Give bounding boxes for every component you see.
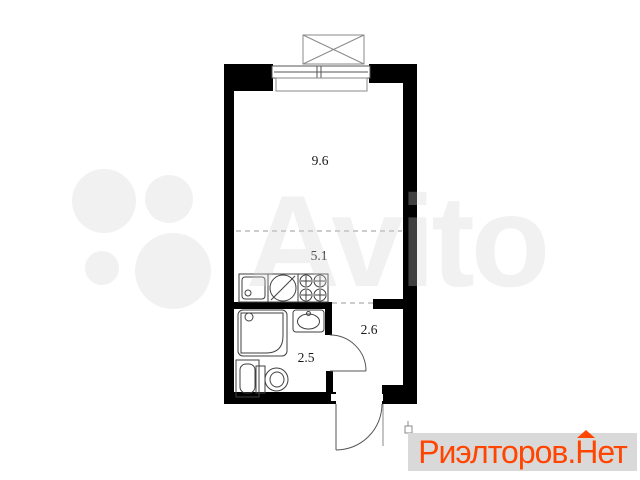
washbasin-icon bbox=[293, 310, 324, 332]
realtors-net-logo: Риэлторов.Нет bbox=[408, 433, 637, 471]
door-jamb bbox=[378, 394, 383, 401]
logo-text-part2: ет bbox=[597, 434, 626, 471]
room-label-bathroom: 2.5 bbox=[298, 350, 315, 366]
logo-house-letter-text: Н bbox=[575, 434, 597, 470]
window-icon bbox=[272, 66, 370, 91]
bathroom-door-arc-icon bbox=[330, 335, 366, 371]
room-label-living: 9.6 bbox=[312, 153, 329, 169]
door-jamb bbox=[331, 394, 336, 401]
kitchen-counter bbox=[239, 274, 328, 302]
entrance-door-arc-icon bbox=[336, 404, 412, 450]
balcony-icon bbox=[303, 35, 364, 64]
logo-house-letter: Н bbox=[575, 434, 597, 471]
toilet-icon bbox=[256, 366, 288, 393]
house-roof-icon bbox=[577, 430, 595, 438]
floor-plan-image: 9.6 5.1 2.5 2.6 Avito Риэлторов.Нет bbox=[0, 0, 640, 480]
logo-text-part1: Риэлторов. bbox=[418, 434, 575, 471]
room-label-hallway: 2.6 bbox=[361, 322, 378, 338]
window-sill bbox=[276, 78, 367, 91]
door-stop-mark bbox=[405, 426, 412, 433]
shower-icon bbox=[238, 310, 287, 356]
floor-plan-drawing bbox=[0, 0, 640, 480]
room-label-kitchen: 5.1 bbox=[311, 248, 328, 264]
